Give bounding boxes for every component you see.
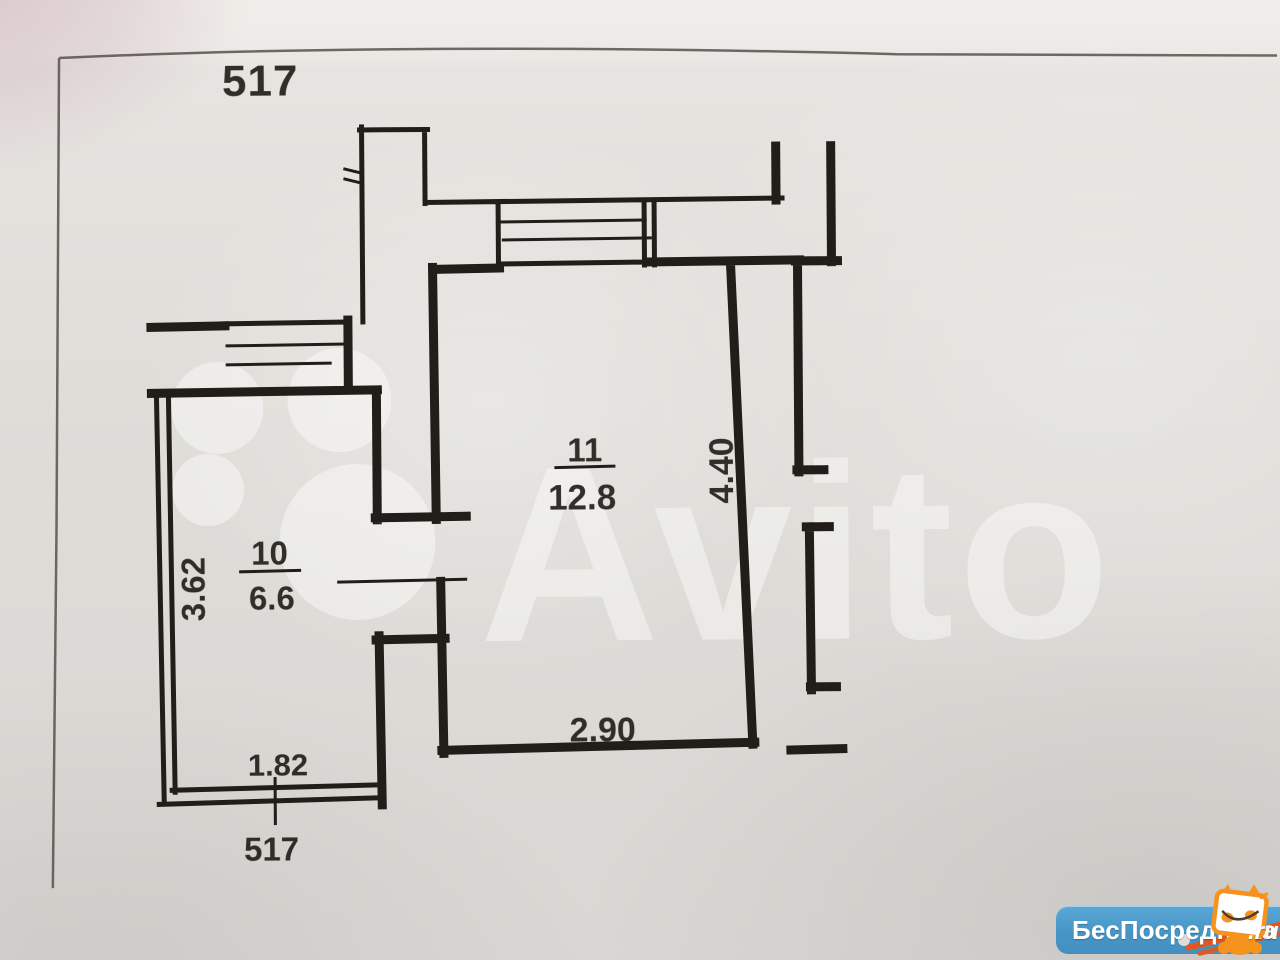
watermark-circle (172, 454, 245, 527)
dimension-room10-width: 1.82 (248, 747, 309, 782)
watermark-circle (171, 362, 264, 455)
room11-number: 11 (567, 431, 602, 468)
frame-left-line (47, 58, 65, 888)
dimension-room11-height: 4.40 (703, 437, 741, 503)
dimension-room10-height: 3.62 (175, 557, 212, 621)
room11-area: 12.8 (548, 478, 616, 517)
avito-watermark: Avito (171, 343, 1115, 697)
logo-tld: .ru (1248, 918, 1279, 946)
floor-plan-drawing: Avito 517 11 12.8 10 6.6 3.62 4.40 2.90 … (0, 0, 1280, 960)
site-logo: БесПосредника .ru (1056, 906, 1280, 954)
floor-plan-photo: Avito 517 11 12.8 10 6.6 3.62 4.40 2.90 … (0, 0, 1280, 960)
watermark-circle (279, 463, 436, 620)
room10-number: 10 (251, 534, 288, 571)
sheet-number-top: 517 (222, 56, 299, 106)
sheet-number-bottom: 517 (244, 830, 299, 867)
room10-area: 6.6 (249, 579, 295, 616)
dimension-room11-width: 2.90 (570, 711, 636, 749)
